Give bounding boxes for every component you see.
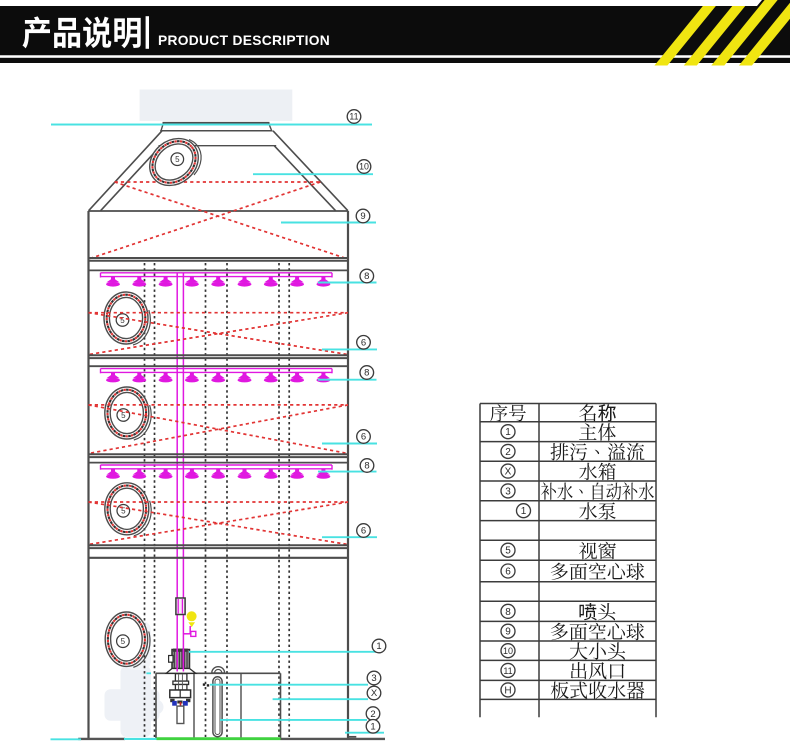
- svg-text:5: 5: [505, 546, 511, 557]
- svg-text:1: 1: [370, 722, 375, 733]
- svg-text:5: 5: [121, 637, 126, 646]
- svg-text:X: X: [371, 688, 378, 699]
- svg-text:3: 3: [371, 673, 376, 684]
- svg-text:PRODUCT DESCRIPTION: PRODUCT DESCRIPTION: [158, 33, 330, 48]
- svg-text:10: 10: [359, 162, 369, 172]
- svg-text:3: 3: [505, 486, 511, 497]
- svg-text:2: 2: [370, 709, 375, 720]
- svg-text:11: 11: [503, 666, 512, 676]
- svg-text:1: 1: [505, 427, 511, 438]
- svg-text:5: 5: [121, 411, 126, 420]
- svg-text:9: 9: [360, 211, 365, 222]
- svg-text:1: 1: [521, 506, 527, 517]
- svg-text:8: 8: [505, 607, 511, 618]
- svg-text:8: 8: [364, 368, 369, 379]
- svg-text:6: 6: [361, 526, 366, 537]
- svg-text:11: 11: [349, 112, 358, 122]
- svg-text:H: H: [504, 685, 511, 696]
- svg-text:8: 8: [364, 271, 369, 282]
- svg-text:5: 5: [175, 155, 180, 164]
- svg-text:9: 9: [505, 627, 511, 638]
- svg-text:8: 8: [364, 461, 369, 472]
- svg-text:X: X: [505, 467, 512, 478]
- svg-text:6: 6: [361, 432, 366, 443]
- svg-text:6: 6: [505, 566, 511, 577]
- svg-text:10: 10: [503, 646, 513, 656]
- svg-text:6: 6: [361, 338, 366, 349]
- svg-text:1: 1: [376, 641, 381, 652]
- svg-text:2: 2: [505, 447, 511, 458]
